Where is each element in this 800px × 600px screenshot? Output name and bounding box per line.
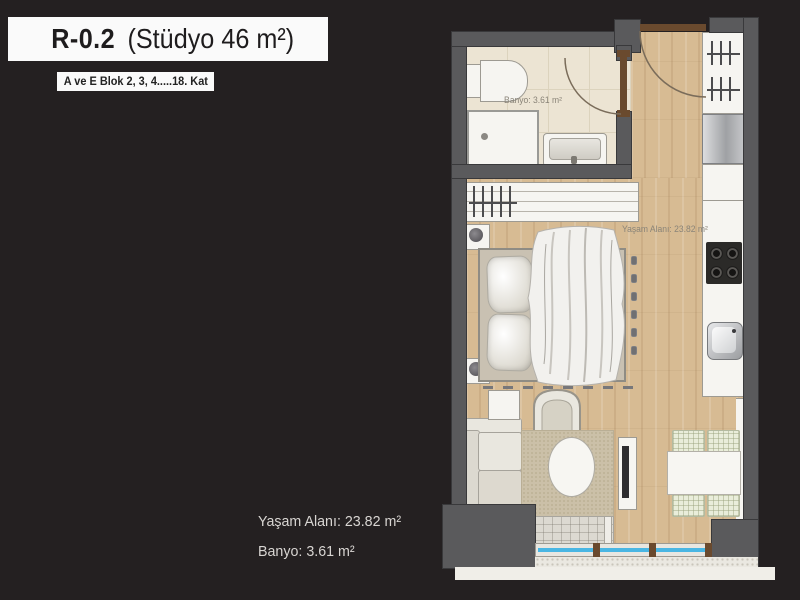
window-mullion — [705, 543, 712, 557]
wall-block-bottom-left — [443, 505, 535, 568]
bathroom-door-jamb — [617, 110, 630, 117]
fridge — [702, 114, 746, 164]
hanger-icon — [711, 41, 738, 65]
burner-icon — [726, 266, 739, 279]
wall-top-bathroom — [452, 32, 640, 46]
balcony-floor — [535, 557, 758, 567]
coffee-table — [548, 437, 595, 497]
wall-right — [744, 18, 758, 568]
stove — [706, 242, 742, 284]
kitchen-sink — [707, 322, 743, 360]
burner-icon — [726, 247, 739, 260]
kitchen-sink-drain — [732, 329, 736, 333]
unit-title: R-0.2 (Stüdyo 46 m²) — [8, 23, 294, 55]
wall-bathroom-bottom — [452, 165, 631, 178]
window-mullion — [593, 543, 600, 557]
kitchen-shelf-unit — [702, 32, 746, 114]
divider-dot — [631, 328, 637, 337]
entry-door-leaf — [640, 24, 706, 31]
hanger-icon — [473, 186, 515, 217]
unit-code: R-0.2 — [51, 23, 115, 54]
kitchen-counter — [702, 200, 746, 397]
living-area-label: Yaşam Alanı: 23.82 m² — [622, 224, 708, 234]
burner-icon — [710, 247, 723, 260]
bathroom-door-jamb — [617, 50, 630, 57]
sofa-cushion — [478, 432, 522, 471]
divider-dot — [631, 292, 637, 301]
divider-dot — [631, 256, 637, 265]
divider-dot — [631, 346, 637, 355]
window-glass — [538, 548, 709, 552]
wall-left — [452, 32, 466, 518]
armchair — [528, 386, 586, 434]
shower-drain — [481, 133, 488, 140]
bathroom-sink-tap — [571, 156, 577, 164]
dining-chair — [707, 492, 740, 517]
floorplan-page: R-0.2 (Stüdyo 46 m²) A ve E Blok 2, 3, 4… — [0, 0, 800, 600]
kitchen-cabinet — [702, 164, 746, 202]
block-floor-label: A ve E Blok 2, 3, 4.....18. Kat — [63, 76, 207, 88]
balcony-sill — [455, 567, 775, 580]
block-floor-box: A ve E Blok 2, 3, 4.....18. Kat — [57, 72, 214, 91]
divider-dot — [631, 274, 637, 283]
bathroom-area-label: Banyo: 3.61 m² — [504, 95, 562, 105]
tv-icon — [622, 446, 629, 498]
burner-icon — [710, 266, 723, 279]
unit-title-box: R-0.2 (Stüdyo 46 m²) — [8, 17, 328, 61]
divider-dots — [631, 256, 637, 355]
side-table — [488, 390, 520, 420]
divider-dot — [631, 310, 637, 319]
wardrobe — [466, 182, 639, 222]
shower-tray — [467, 110, 539, 170]
hanger-icon — [711, 77, 738, 101]
summary-bathroom-area: Banyo: 3.61 m² — [258, 543, 355, 560]
bathroom-door-leaf — [620, 56, 627, 114]
window-mullion — [649, 543, 656, 557]
lamp-icon — [469, 228, 483, 242]
duvet — [524, 224, 630, 388]
dining-chair — [672, 492, 705, 517]
summary-living-area: Yaşam Alanı: 23.82 m² — [258, 513, 401, 530]
unit-type-area: (Stüdyo 46 m²) — [127, 23, 294, 54]
dining-table — [667, 451, 741, 495]
sofa-cushion — [478, 470, 522, 509]
